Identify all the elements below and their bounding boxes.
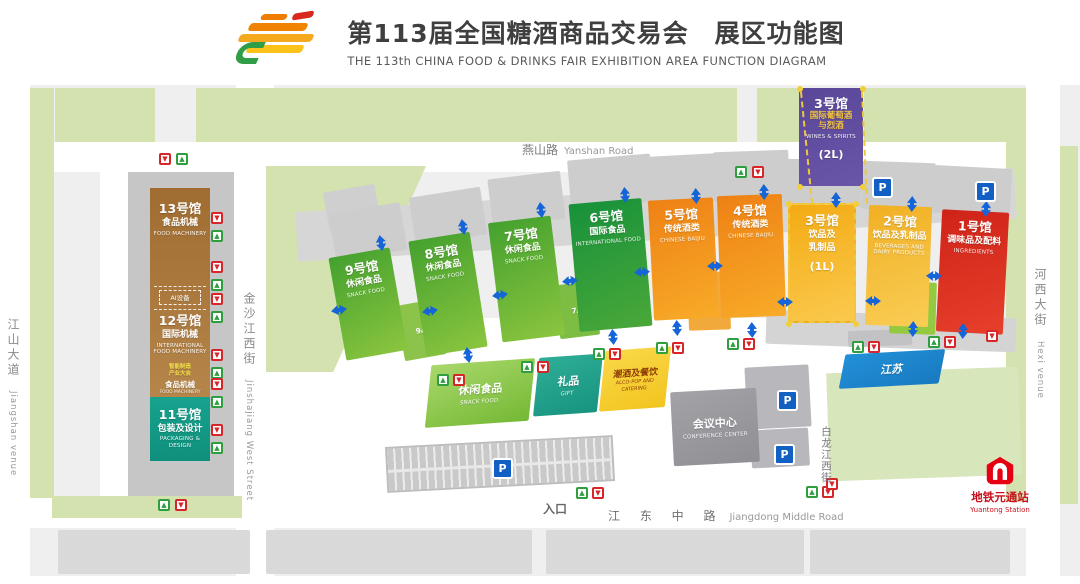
link-arrow-vertical	[619, 182, 631, 209]
hall-text: CONFERENCE CENTER	[676, 430, 755, 441]
parking-icon: P	[774, 444, 795, 465]
exit-gate-icon: ▼	[944, 336, 956, 348]
exit-gate-icon: ▼	[211, 378, 223, 390]
hall-text: 7号馆	[504, 226, 539, 244]
hall-12-name-en: INTERNATIONAL FOOD MACHINERY	[152, 343, 207, 357]
hall-text: 4号馆	[733, 203, 767, 218]
yanshan-road-en: Yanshan Road	[564, 146, 633, 157]
grey-block	[810, 530, 1010, 574]
exit-gate-icon: ▼	[453, 374, 465, 386]
entry-gate-icon: ▲	[928, 336, 940, 348]
west-building-complex: 13号馆 食品机械 FOOD MACHINERY AI设备 12号馆 国际机械 …	[100, 146, 250, 518]
jiangsu-building: 江苏	[839, 349, 946, 389]
link-arrow-vertical	[690, 183, 701, 209]
projection-dot	[853, 321, 859, 327]
link-arrow-vertical	[957, 318, 968, 344]
entry-gate-icon: ▲	[437, 374, 449, 386]
hall-text: 饮品及乳制品	[872, 230, 926, 243]
link-arrow-vertical	[747, 317, 758, 343]
entry-gate-icon: ▲	[158, 499, 170, 511]
ai-equipment-zone: AI设备	[159, 290, 201, 305]
exit-gate-icon: ▼	[537, 361, 549, 373]
smart-mfg-line2: 产业大会	[150, 371, 210, 378]
hall-13-name-en: FOOD MACHINERY	[152, 231, 207, 238]
link-arrow-vertical	[607, 324, 619, 351]
hall-text: SNACK FOOD	[495, 253, 553, 267]
parking-icon: P	[975, 181, 996, 202]
hall-11-name: 包装及设计	[157, 424, 202, 435]
jiangdong-road-label: 江 东 中 路Jiangdong Middle Road	[608, 505, 844, 524]
bailongjiang-cn: 白龙江西街	[820, 426, 832, 484]
green-zone	[52, 496, 242, 518]
entry-gate-icon: ▲	[656, 342, 668, 354]
hall-text: CHINESE BAIJIU	[721, 232, 781, 241]
link-arrow-horizontal	[921, 271, 947, 282]
entry-gate-icon: ▲	[176, 153, 188, 165]
projection-dot	[860, 184, 866, 190]
hall-11: 11号馆 包装及设计 PACKAGING & DESIGN	[150, 397, 210, 461]
projection-dot	[860, 86, 866, 92]
exit-gate-icon: ▼	[752, 166, 764, 178]
smart-manufacturing-zone: 智能制造 产业大会 食品机械 FOOD MACHINERY	[150, 364, 210, 395]
hexi-en: Hexi venue	[1035, 341, 1045, 399]
green-zone	[757, 88, 800, 142]
exit-gate-icon: ▼	[592, 487, 604, 499]
hall-13-name: 食品机械	[150, 218, 210, 229]
entry-gate-icon: ▲	[593, 348, 605, 360]
hall-text: INGREDIENTS	[943, 247, 1005, 257]
link-arrow-vertical	[759, 179, 770, 205]
page-title: 第113届全国糖酒商品交易会 展区功能图	[347, 14, 844, 50]
jiangshan-en: Jiangshan venue	[8, 391, 18, 476]
exit-gate-icon: ▼	[986, 330, 998, 342]
exit-gate-icon: ▼	[159, 153, 171, 165]
entry-gate-icon: ▲	[521, 361, 533, 373]
logo-green-hook	[233, 42, 267, 64]
entry-gate-icon: ▲	[852, 341, 864, 353]
hall-text: 传统酒类	[732, 219, 768, 231]
metro-station-label: 地铁元通站 Yuantong Station	[945, 489, 1055, 514]
hall-text: INTERNATIONAL FOOD	[575, 236, 642, 249]
hall-text: 5号馆	[664, 207, 698, 222]
hall-text: 国际葡萄酒	[810, 111, 853, 122]
link-arrow-vertical	[907, 191, 918, 217]
projection-dot	[786, 201, 792, 207]
exit-gate-icon: ▼	[211, 261, 223, 273]
hall-text: 饮品及	[808, 230, 835, 241]
metro-station-cn: 地铁元通站	[945, 489, 1055, 505]
divider	[154, 286, 206, 287]
hall-text: 3号馆	[805, 214, 839, 228]
metro-icon	[984, 456, 1016, 486]
parking-icon: P	[492, 458, 513, 479]
hall-text: 乳制品	[808, 243, 835, 254]
logo-stripe	[248, 23, 310, 31]
exit-gate-icon: ▼	[211, 424, 223, 436]
hexi-street-label: 河西大街 Hexi venue	[1032, 268, 1049, 399]
hall-6: 6号馆国际食品INTERNATIONAL FOOD	[569, 198, 653, 332]
hall-11-number: 11号馆	[159, 408, 201, 422]
exit-gate-icon: ▼	[211, 349, 223, 361]
link-arrow-horizontal	[860, 296, 886, 306]
exhibition-function-diagram: 13号馆 食品机械 FOOD MACHINERY AI设备 12号馆 国际机械 …	[0, 0, 1080, 584]
green-zone	[55, 88, 155, 142]
entrance-label: 入口	[543, 500, 567, 517]
hall-12-name: 国际机械	[150, 330, 210, 341]
entry-gate-icon: ▲	[806, 486, 818, 498]
hall-text: WINES & SPIRITS	[802, 134, 861, 141]
metro-station-en: Yuantong Station	[945, 506, 1055, 514]
logo-stripe	[260, 14, 289, 20]
hall-text: 江苏	[879, 360, 904, 377]
hall-text: SNACK FOOD	[431, 395, 527, 409]
smart-mfg-name-en: FOOD MACHINERY	[150, 390, 210, 395]
fair-logo-icon	[235, 12, 327, 70]
hall-2: 2号馆饮品及乳制品BEVERAGES AND DAIRY PRODUCTS	[865, 205, 932, 327]
hall-text: 传统酒类	[664, 223, 701, 236]
jinshajiang-en: Jinshajiang West Street	[244, 380, 254, 501]
grey-block	[266, 530, 532, 574]
hall-text: CHINESE BAIJIU	[652, 235, 712, 245]
projection-dot	[853, 201, 859, 207]
hall-text: 6号馆	[589, 209, 624, 226]
entry-gate-icon: ▲	[735, 166, 747, 178]
projection-dot	[786, 321, 792, 327]
hall-text: (1L)	[810, 260, 835, 273]
link-arrow-horizontal	[629, 266, 656, 278]
page-header: 第113届全国糖酒商品交易会 展区功能图 THE 113th CHINA FOO…	[0, 12, 1080, 70]
green-zone	[196, 88, 737, 142]
parking-icon: P	[777, 390, 798, 411]
hall-text: GIFT	[537, 389, 596, 400]
exit-gate-icon: ▼	[175, 499, 187, 511]
hall-text: 礼品	[557, 372, 581, 390]
entry-gate-icon: ▲	[211, 230, 223, 242]
hall-text: (2L)	[819, 148, 844, 161]
link-arrow-horizontal	[772, 297, 798, 307]
hall-text: 调味品及配料	[947, 234, 1002, 248]
snack-food-annex: 休闲食品SNACK FOOD	[425, 358, 535, 428]
link-arrow-vertical	[671, 315, 682, 341]
road	[0, 576, 1080, 584]
exit-gate-icon: ▼	[868, 341, 880, 353]
hall-text: 会议中心	[692, 413, 737, 431]
hall-text: 国际食品	[589, 224, 626, 238]
yanshan-road-label: 燕山路Yanshan Road	[522, 139, 634, 158]
divider	[154, 309, 206, 310]
yanshan-road-cn: 燕山路	[522, 143, 558, 157]
logo-stripe	[292, 10, 315, 20]
entry-gate-icon: ▲	[211, 396, 223, 408]
hall-13-number: 13号馆	[150, 202, 210, 216]
bailongjiang-street-label: 白龙江西街	[819, 426, 834, 484]
jinshajiang-street-label: 金沙江西街 Jinshajiang West Street	[241, 292, 258, 501]
hall-text: BEVERAGES AND DAIRY PRODUCTS	[870, 243, 928, 259]
link-arrow-vertical	[908, 316, 919, 342]
green-zone	[864, 88, 1006, 142]
hall-5: 5号馆传统酒类CHINESE BAIJIU	[648, 197, 719, 320]
hall-12: 12号馆 国际机械 INTERNATIONAL FOOD MACHINERY	[150, 314, 210, 356]
green-zone	[30, 88, 54, 498]
exit-gate-icon: ▼	[211, 293, 223, 305]
entry-gate-icon: ▲	[576, 487, 588, 499]
projection-dot	[797, 86, 803, 92]
hall-text: 与烈酒	[818, 121, 844, 132]
smart-mfg-name: 食品机械	[150, 379, 210, 390]
jinshajiang-cn: 金沙江西街	[242, 292, 256, 367]
hall-13: 13号馆 食品机械 FOOD MACHINERY	[150, 202, 210, 237]
hall-11-name-en: PACKAGING & DESIGN	[152, 436, 207, 450]
hall-12-number: 12号馆	[150, 314, 210, 328]
link-arrow-vertical	[831, 187, 841, 213]
exit-gate-icon: ▼	[672, 342, 684, 354]
page-subtitle: THE 113th CHINA FOOD & DRINKS FAIR EXHIB…	[347, 54, 844, 68]
entry-gate-icon: ▲	[211, 442, 223, 454]
hall-13-12-building: 13号馆 食品机械 FOOD MACHINERY AI设备 12号馆 国际机械 …	[150, 188, 210, 397]
entry-gate-icon: ▲	[727, 338, 739, 350]
hall-text: 3号馆	[814, 97, 848, 111]
conference-center: 会议中心CONFERENCE CENTER	[670, 388, 760, 466]
entry-gate-icon: ▲	[211, 279, 223, 291]
logo-stripe	[238, 34, 316, 42]
hall-3-1l: 3号馆饮品及乳制品(1L)	[788, 203, 856, 323]
entry-gate-icon: ▲	[211, 311, 223, 323]
parking-icon: P	[872, 177, 893, 198]
jiangdong-road-en: Jiangdong Middle Road	[729, 512, 843, 523]
link-arrow-horizontal	[702, 261, 728, 272]
hexi-cn: 河西大街	[1033, 268, 1047, 328]
jiangshan-cn: 江山大道	[6, 318, 20, 378]
projection-dot	[797, 184, 803, 190]
grey-block	[546, 530, 804, 574]
green-zone	[1060, 146, 1078, 504]
jiangshan-avenue-label: 江山大道 Jiangshan venue	[5, 318, 22, 476]
grey-block	[58, 530, 250, 574]
exit-gate-icon: ▼	[211, 212, 223, 224]
jiangdong-road-cn: 江 东 中 路	[608, 509, 723, 523]
